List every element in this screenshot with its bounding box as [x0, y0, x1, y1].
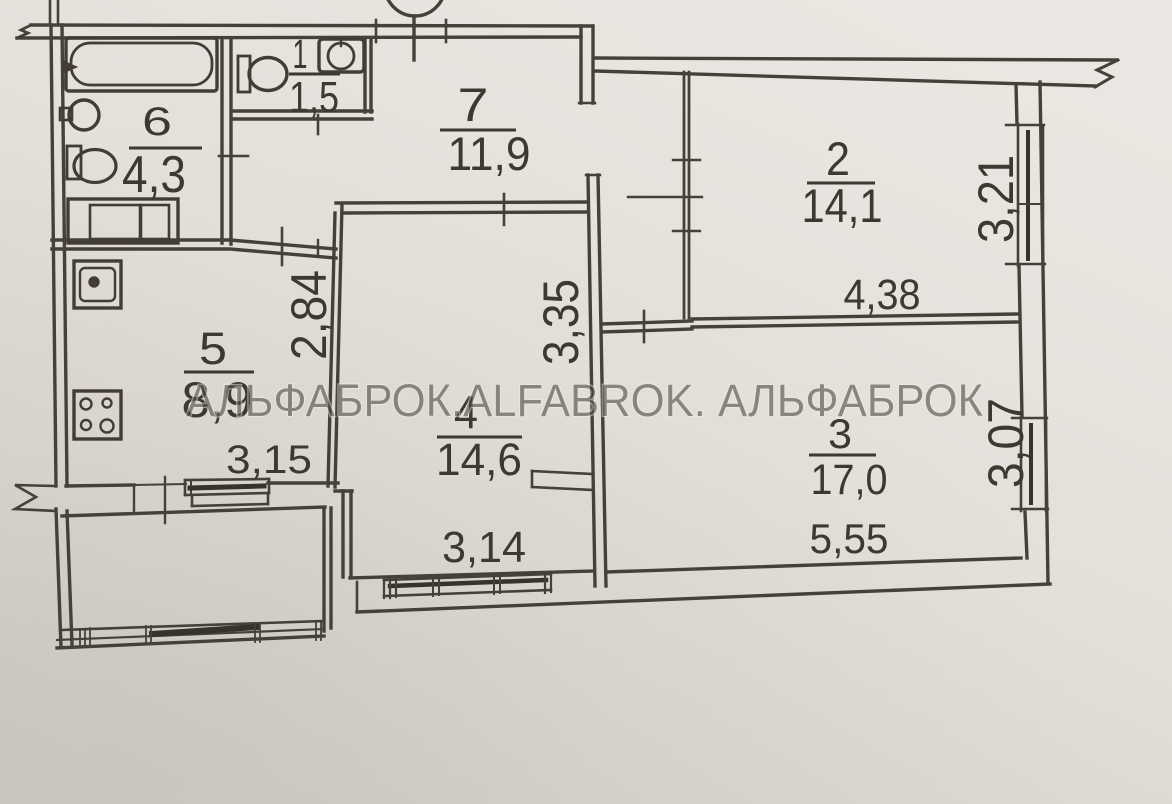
svg-text:5: 5	[199, 323, 227, 374]
svg-text:2,84: 2,84	[281, 270, 337, 360]
svg-text:11,9: 11,9	[448, 127, 531, 180]
svg-text:7: 7	[458, 78, 489, 131]
svg-text:3,14: 3,14	[442, 523, 526, 572]
svg-text:1: 1	[293, 31, 308, 77]
svg-text:2: 2	[826, 132, 850, 185]
svg-text:АЛЬФАБРОК.ALFABROK. АЛЬФАБРОК: АЛЬФАБРОК.ALFABROK. АЛЬФАБРОК	[186, 375, 983, 426]
svg-text:14,1: 14,1	[802, 179, 883, 232]
svg-text:4,3: 4,3	[122, 146, 186, 204]
svg-text:3,15: 3,15	[226, 438, 312, 482]
svg-text:1,5: 1,5	[289, 73, 339, 122]
svg-text:5,55: 5,55	[810, 515, 889, 562]
svg-text:6: 6	[142, 100, 172, 144]
svg-text:14,6: 14,6	[436, 434, 522, 485]
svg-text:3,07: 3,07	[978, 398, 1034, 488]
svg-text:3,21: 3,21	[968, 155, 1024, 243]
svg-text:4,38: 4,38	[844, 271, 921, 319]
svg-text:3,35: 3,35	[533, 279, 589, 365]
svg-text:17,0: 17,0	[811, 456, 888, 504]
